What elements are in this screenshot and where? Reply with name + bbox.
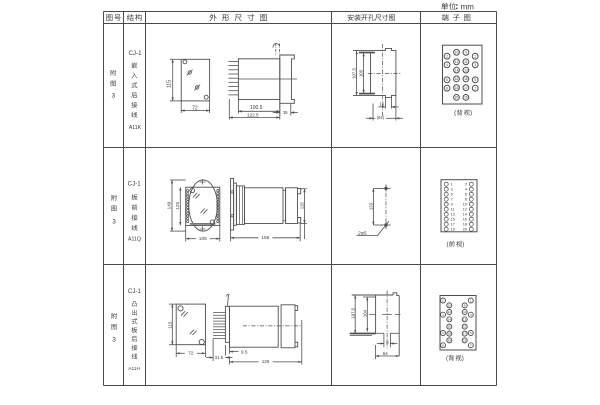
- svg-text:19: 19: [463, 339, 467, 343]
- svg-text:16: 16: [379, 102, 384, 107]
- svg-text:15: 15: [463, 325, 467, 329]
- svg-text:3: 3: [112, 218, 116, 225]
- svg-text:107.5: 107.5: [352, 68, 357, 79]
- svg-text:(: (: [446, 241, 449, 248]
- svg-text:133: 133: [368, 202, 373, 210]
- svg-text:1: 1: [474, 54, 476, 58]
- svg-text:9: 9: [451, 203, 453, 207]
- svg-text:A11H: A11H: [128, 366, 140, 372]
- svg-text:3: 3: [451, 188, 453, 192]
- svg-text:8: 8: [446, 86, 448, 90]
- svg-text:19: 19: [451, 228, 455, 232]
- svg-text:CJ-1: CJ-1: [128, 181, 142, 188]
- svg-text:115: 115: [300, 202, 305, 210]
- svg-text:CJ-1: CJ-1: [128, 50, 142, 57]
- svg-text:(: (: [446, 355, 449, 362]
- svg-text:): ): [470, 110, 472, 117]
- svg-text:9: 9: [465, 51, 467, 55]
- svg-text:8: 8: [442, 343, 444, 347]
- svg-text:10: 10: [463, 203, 467, 207]
- svg-text:10: 10: [448, 304, 452, 308]
- svg-text:9: 9: [464, 304, 466, 308]
- svg-text:14: 14: [455, 68, 459, 72]
- svg-text:115: 115: [167, 321, 172, 329]
- svg-text:104: 104: [362, 309, 367, 317]
- svg-text:1: 1: [451, 183, 453, 187]
- svg-text:12: 12: [455, 60, 459, 64]
- svg-text:15: 15: [464, 77, 468, 81]
- svg-text:126: 126: [262, 359, 270, 364]
- svg-text:3: 3: [112, 336, 116, 343]
- svg-text:4: 4: [446, 63, 448, 67]
- svg-text:(: (: [454, 110, 457, 117]
- svg-text:105: 105: [199, 236, 207, 242]
- svg-text:100.5: 100.5: [250, 105, 263, 111]
- svg-text:8: 8: [465, 198, 467, 202]
- svg-text:6: 6: [442, 331, 444, 335]
- svg-text:2: 2: [465, 183, 467, 187]
- svg-text:19: 19: [464, 96, 468, 100]
- svg-text:13: 13: [463, 317, 467, 321]
- svg-text:9.5: 9.5: [241, 349, 248, 354]
- svg-text:16: 16: [455, 77, 459, 81]
- svg-text:17: 17: [464, 86, 468, 90]
- svg-text:122.5: 122.5: [247, 113, 259, 118]
- svg-text:11: 11: [451, 208, 455, 212]
- svg-text:20: 20: [455, 96, 459, 100]
- svg-text:20: 20: [463, 228, 467, 232]
- svg-text:72: 72: [188, 351, 194, 357]
- svg-text:16: 16: [463, 218, 467, 222]
- svg-text:3: 3: [474, 63, 476, 67]
- svg-text:14: 14: [463, 213, 467, 217]
- svg-text:CJ-1: CJ-1: [128, 288, 142, 295]
- svg-text:6: 6: [465, 193, 467, 197]
- svg-text:2: 2: [442, 299, 444, 303]
- svg-text:7: 7: [474, 86, 476, 90]
- svg-text:64: 64: [383, 351, 388, 356]
- svg-text:125: 125: [175, 202, 180, 210]
- svg-text:72: 72: [192, 106, 198, 112]
- svg-text:2: 2: [446, 54, 448, 58]
- svg-text:149: 149: [166, 201, 171, 209]
- svg-text:12: 12: [448, 310, 452, 314]
- svg-text:7: 7: [451, 198, 453, 202]
- svg-text:2φ5: 2φ5: [358, 230, 367, 236]
- svg-text:156: 156: [261, 235, 269, 241]
- svg-text:7: 7: [470, 343, 472, 347]
- svg-text:4: 4: [442, 313, 444, 317]
- svg-text:13: 13: [451, 213, 455, 217]
- svg-text:A11K: A11K: [129, 125, 142, 131]
- svg-text:35: 35: [283, 110, 288, 115]
- svg-text:5: 5: [474, 78, 476, 82]
- svg-text:12: 12: [463, 208, 467, 212]
- svg-text:11: 11: [463, 310, 466, 314]
- svg-text:1: 1: [470, 299, 472, 303]
- svg-text:18: 18: [455, 86, 459, 90]
- svg-text:mm: mm: [461, 2, 475, 11]
- svg-text:): ): [462, 241, 464, 248]
- svg-text:3: 3: [470, 313, 472, 317]
- svg-text:6: 6: [446, 78, 448, 82]
- svg-text:10: 10: [455, 51, 459, 55]
- svg-text:14: 14: [448, 317, 452, 321]
- svg-text:18: 18: [448, 332, 452, 336]
- svg-text:115: 115: [167, 80, 173, 88]
- svg-text:13: 13: [464, 68, 468, 72]
- svg-text:16: 16: [385, 340, 389, 344]
- svg-text:5: 5: [451, 193, 453, 197]
- svg-text:17: 17: [451, 223, 455, 227]
- svg-text:11: 11: [464, 60, 468, 64]
- svg-text:(64): (64): [377, 115, 385, 120]
- svg-text:20: 20: [448, 339, 452, 343]
- svg-text:): ): [462, 355, 464, 362]
- svg-text:107.5: 107.5: [350, 307, 355, 318]
- svg-text:5: 5: [470, 331, 472, 335]
- svg-text:31.5: 31.5: [215, 355, 224, 360]
- svg-text:15: 15: [451, 218, 455, 222]
- svg-text:105: 105: [359, 69, 364, 77]
- svg-text:3: 3: [111, 92, 115, 99]
- svg-text:4: 4: [465, 188, 467, 192]
- svg-text:16: 16: [448, 325, 452, 329]
- svg-text:A11Q: A11Q: [128, 237, 141, 243]
- svg-text:17: 17: [463, 332, 467, 336]
- svg-text:18: 18: [463, 223, 467, 227]
